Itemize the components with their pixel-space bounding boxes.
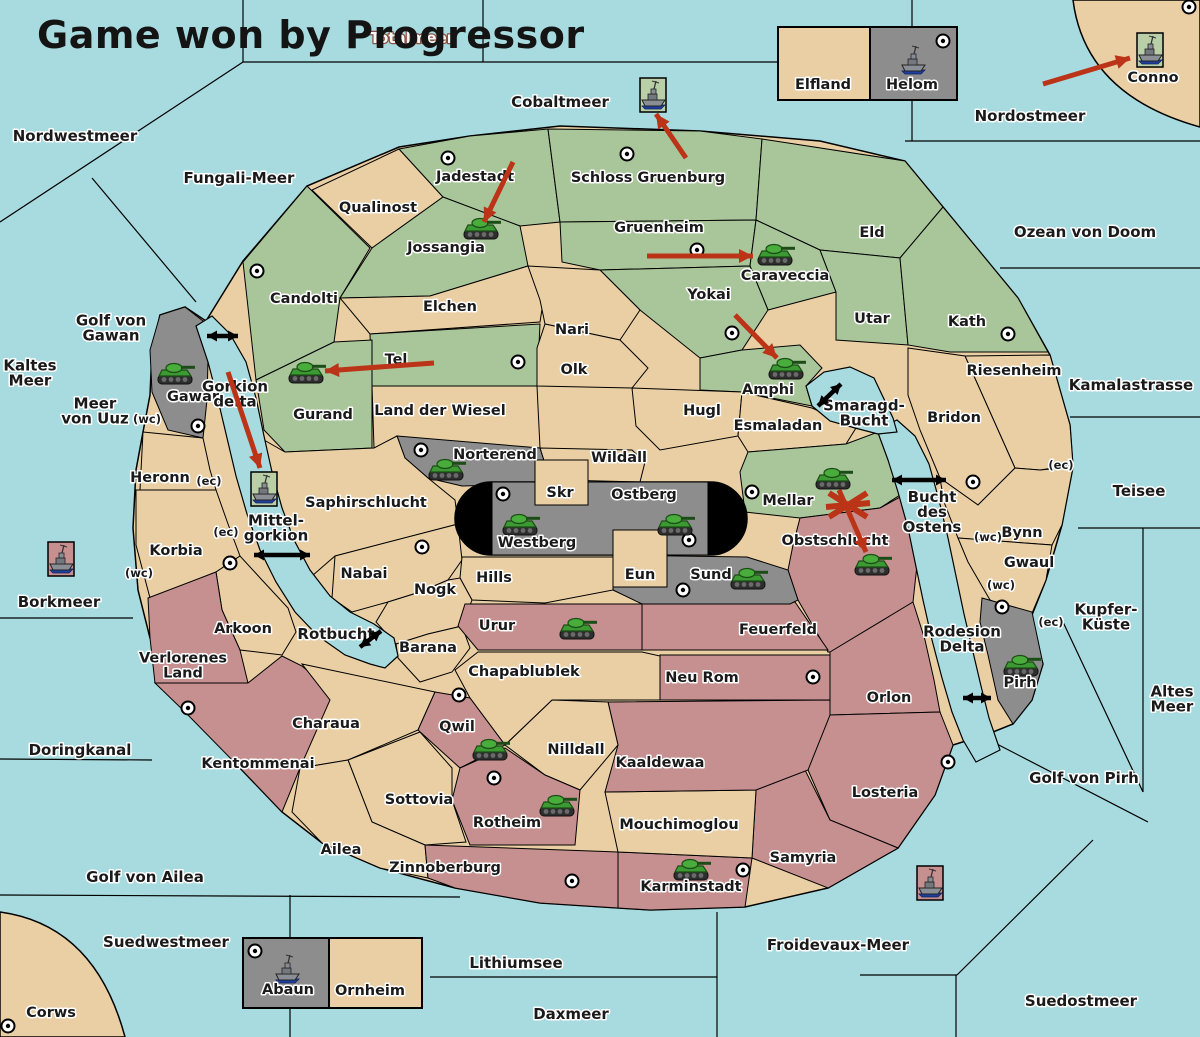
sea-label-kaltes-meer: KaltesMeer [3, 357, 56, 390]
region-label-saphirschlucht: Saphirschlucht [305, 495, 427, 511]
city-marker [442, 152, 455, 165]
region-label-candolti: Candolti [270, 291, 338, 307]
sea-label-mittel-gorkion: Mittel-gorkion [244, 512, 309, 545]
region-label-wildall: Wildall [591, 450, 647, 466]
city-marker [182, 702, 195, 715]
sea-label-altes-meer: AltesMeer [1150, 683, 1193, 716]
city-marker [937, 35, 950, 48]
region-label-hills: Hills [476, 570, 512, 586]
region-label-zinnoberburg: Zinnoberburg [389, 860, 501, 876]
region-label-karminstadt: Karminstadt [640, 879, 741, 895]
city-marker [453, 689, 466, 702]
region-label-neu-rom: Neu Rom [665, 670, 739, 686]
region-label-ornheim: Ornheim [335, 983, 405, 999]
region-label-qwil: Qwil [439, 719, 475, 735]
region-label-jossangia: Jossangia [406, 240, 485, 256]
region-label-riesenheim: Riesenheim [967, 363, 1062, 379]
coast-badge-wc: (wc) [125, 566, 153, 580]
region-label-samyria: Samyria [770, 850, 837, 866]
city-marker [737, 864, 750, 877]
sea-label-fungali-meer: Fungali-Meer [184, 169, 295, 187]
region-label-charaua: Charaua [292, 716, 360, 732]
ship-icon[interactable] [251, 472, 277, 506]
city-marker [2, 1020, 15, 1033]
sea-label-doringkanal: Doringkanal [29, 741, 132, 759]
region-label-abaun: Abaun [262, 982, 314, 998]
map-title: Game won by Progressor [37, 13, 585, 57]
sea-label-golf-von-ailea: Golf von Ailea [86, 868, 204, 886]
region-label-mouchimoglou: Mouchimoglou [619, 817, 738, 833]
region-label-kath: Kath [948, 314, 986, 330]
region-label-eun: Eun [625, 567, 656, 583]
sea-label-golf-von-gawan: Golf vonGawan [76, 312, 146, 345]
city-marker [512, 356, 525, 369]
sea-label-nordwestmeer: Nordwestmeer [13, 127, 138, 145]
region-label-eld: Eld [859, 225, 884, 241]
sea-label-suedostmeer: Suedostmeer [1025, 992, 1138, 1010]
region-label-nilldall: Nilldall [547, 742, 604, 758]
region-label-sottovia: Sottovia [385, 792, 453, 808]
city-marker [249, 945, 262, 958]
city-marker [416, 541, 429, 554]
region-label-kaaldewaa: Kaaldewaa [616, 755, 705, 771]
sea-label-borkmeer: Borkmeer [18, 593, 101, 611]
city-marker [807, 671, 820, 684]
coast-badge-ec: (ec) [213, 525, 238, 539]
region-label-nari: Nari [555, 322, 589, 338]
region-label-nogk: Nogk [414, 582, 456, 598]
game-map-screen: CandoltiQualinostJadestadtSchloss Gruenb… [0, 0, 1200, 1037]
region-label-gwaul: Gwaul [1004, 555, 1054, 571]
region-label-barana: Barana [399, 640, 457, 656]
city-marker [415, 444, 428, 457]
region-label-schloss-gruenburg: Schloss Gruenburg [571, 170, 725, 186]
city-marker [746, 486, 759, 499]
region-label-kentommenai: Kentommenai [201, 756, 314, 772]
region-label-mellar: Mellar [762, 493, 814, 509]
sea-label-teisee: Teisee [1113, 482, 1166, 500]
region-label-bynn: Bynn [1001, 525, 1042, 541]
region-label-elfland: Elfland [795, 77, 851, 93]
region-label-elchen: Elchen [423, 299, 477, 315]
sea-label-kupfer-küste: Kupfer-Küste [1074, 601, 1137, 634]
city-marker [488, 772, 501, 785]
city-marker [251, 265, 264, 278]
region-label-yokai: Yokai [686, 287, 731, 303]
coast-badge-wc: (wc) [133, 412, 161, 426]
region-label-nabai: Nabai [340, 566, 387, 582]
coast-badge-wc: (wc) [974, 530, 1002, 544]
region-label-corws: Corws [26, 1005, 76, 1021]
city-marker [726, 327, 739, 340]
region-label-skr: Skr [546, 485, 574, 501]
sea-label-lithiumsee: Lithiumsee [469, 954, 562, 972]
region-label-sund: Sund [690, 567, 731, 583]
region-label-qualinost: Qualinost [339, 200, 417, 216]
sea-label-golf-von-pirh: Golf von Pirh [1029, 769, 1139, 787]
sea-label-nordostmeer: Nordostmeer [975, 107, 1086, 125]
region-label-orlon: Orlon [867, 690, 912, 706]
city-marker [996, 601, 1009, 614]
coast-badge-ec: (ec) [1038, 615, 1063, 629]
ship-icon[interactable] [1137, 33, 1163, 67]
city-marker [192, 420, 205, 433]
city-marker [942, 756, 955, 769]
sea-label-ozean-von-doom: Ozean von Doom [1014, 223, 1156, 241]
region-label-gruenheim: Gruenheim [614, 220, 704, 236]
region-label-pirh: Pirh [1003, 675, 1036, 691]
region-label-bridon: Bridon [927, 410, 981, 426]
city-marker [677, 584, 690, 597]
city-marker [1002, 328, 1015, 341]
region-label-ailea: Ailea [321, 842, 362, 858]
coast-badge-ec: (ec) [1048, 458, 1073, 472]
region-label-gurand: Gurand [293, 407, 353, 423]
city-marker [224, 557, 237, 570]
region-label-utar: Utar [854, 311, 890, 327]
coast-badge-ec: (ec) [196, 474, 221, 488]
region-label-ostberg: Ostberg [611, 487, 677, 503]
region-label-arkoon: Arkoon [214, 621, 272, 637]
ship-icon[interactable] [917, 866, 943, 900]
region-label-urur: Urur [479, 618, 516, 634]
city-marker [621, 148, 634, 161]
sea-label-suedwestmeer: Suedwestmeer [103, 933, 229, 951]
region-label-losteria: Losteria [852, 785, 919, 801]
region-label-caraveccia: Caraveccia [741, 268, 830, 284]
city-marker [497, 488, 510, 501]
ship-icon[interactable] [48, 542, 74, 576]
region-label-westberg: Westberg [498, 535, 577, 551]
region-label-chapablublek: Chapablublek [468, 664, 580, 680]
region-label-rotheim: Rotheim [473, 815, 541, 831]
sea-label-daxmeer: Daxmeer [533, 1005, 609, 1023]
region-label-hugl: Hugl [683, 403, 721, 419]
region-label-olk: Olk [561, 362, 588, 378]
coast-badge-wc: (wc) [987, 578, 1015, 592]
city-marker [566, 875, 579, 888]
region-label-heronn: Heronn [130, 470, 190, 486]
region-label-helom: Helom [886, 77, 938, 93]
city-marker [1183, 1, 1196, 14]
region-label-amphi: Amphi [742, 382, 794, 398]
world-map: CandoltiQualinostJadestadtSchloss Gruenb… [0, 0, 1200, 1037]
region-label-norterend: Norterend [453, 447, 537, 463]
region-label-esmaladan: Esmaladan [734, 418, 823, 434]
region-label-feuerfeld: Feuerfeld [739, 622, 817, 638]
region-label-land-der-wiesel: Land der Wiesel [374, 403, 505, 419]
sea-label-cobaltmeer: Cobaltmeer [511, 93, 609, 111]
city-marker [967, 476, 980, 489]
region-label-conno: Conno [1127, 70, 1178, 86]
ship-icon[interactable] [640, 78, 666, 112]
region-label-obstschlucht: Obstschlucht [782, 533, 889, 549]
region-label-korbia: Korbia [149, 543, 202, 559]
sea-label-froidevaux-meer: Froidevaux-Meer [767, 936, 910, 954]
sea-label-kamalastrasse: Kamalastrasse [1069, 376, 1193, 394]
